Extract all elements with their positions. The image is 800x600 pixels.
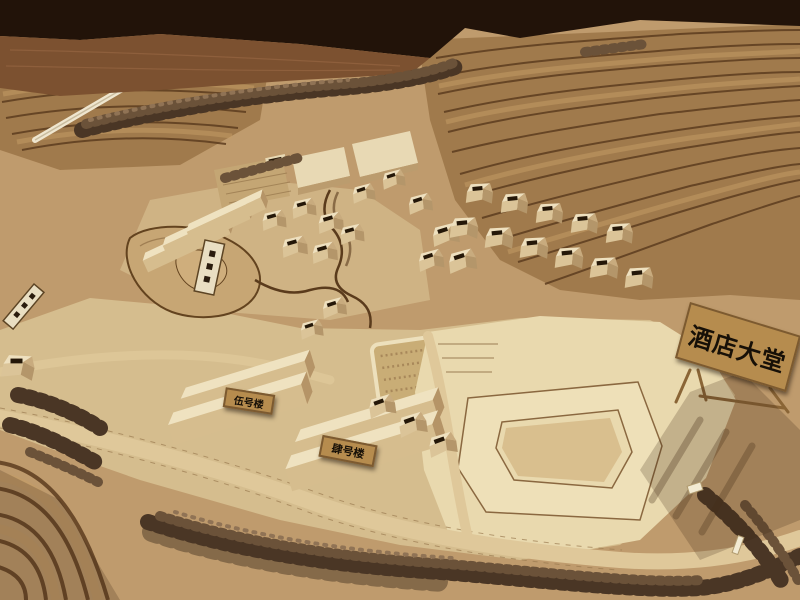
model-photo: 酒店大堂 伍号楼 肆号楼: [0, 0, 800, 600]
model-scene: [0, 0, 800, 600]
